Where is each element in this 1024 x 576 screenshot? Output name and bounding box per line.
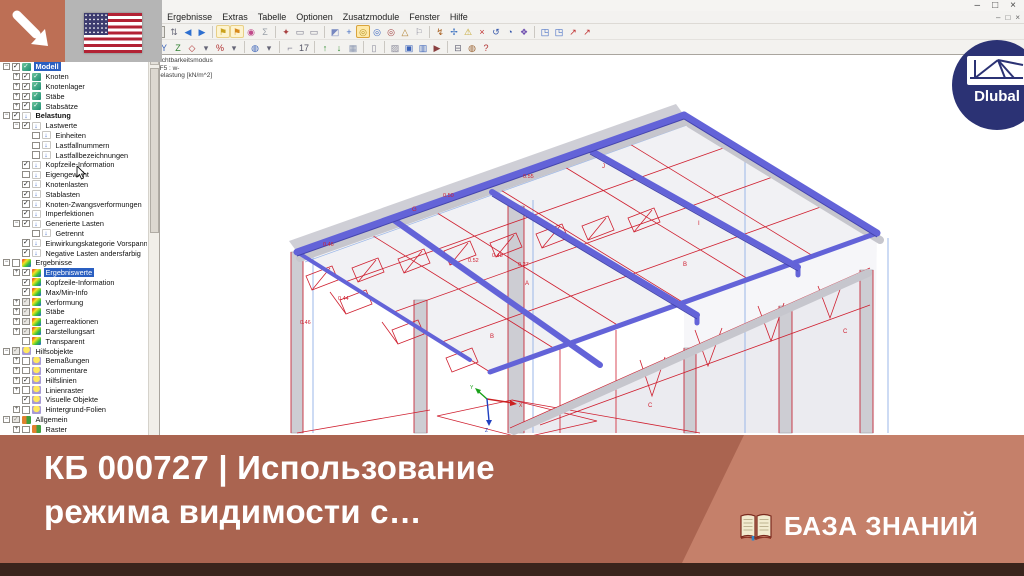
tree-item-label: Raster xyxy=(44,425,70,434)
collapse-icon[interactable]: − xyxy=(13,220,20,227)
expand-icon[interactable]: + xyxy=(13,103,20,110)
model-icon: ✓ xyxy=(32,92,41,100)
expand-icon[interactable]: + xyxy=(13,387,20,394)
tree-checkbox[interactable]: ✓ xyxy=(22,269,30,277)
helper-icon xyxy=(22,347,31,355)
load-icon: ↓ xyxy=(32,220,41,228)
tree-item-label: Knoten xyxy=(44,72,71,81)
tree-checkbox[interactable] xyxy=(32,230,40,238)
tree-checkbox[interactable]: ✓ xyxy=(12,416,20,424)
tree-item-label: Linienraster xyxy=(44,386,86,395)
workplane-icon[interactable]: ◎ xyxy=(356,25,370,38)
visibility-dd-icon[interactable]: ▾ xyxy=(262,41,276,54)
tree-item-ergebnisse[interactable]: −Ergebnisse xyxy=(1,258,147,268)
tree-checkbox[interactable]: ✓ xyxy=(22,279,30,287)
tree-checkbox[interactable]: ✓ xyxy=(22,288,30,296)
tree-item-ergebniswerte[interactable]: +✓Ergebniswerte xyxy=(1,268,147,278)
model-icon: ✓ xyxy=(32,73,41,81)
plane-xy-icon[interactable]: ◎ xyxy=(370,25,384,38)
tree-checkbox[interactable]: ✓ xyxy=(22,161,30,169)
svg-text:A: A xyxy=(525,281,529,287)
tree-checkbox[interactable]: ✓ xyxy=(12,112,20,120)
load-icon: ↓ xyxy=(32,161,41,169)
tree-item-label: Stablasten xyxy=(44,190,82,199)
tree-item-stäbe[interactable]: +✓Stäbe xyxy=(1,307,147,317)
tree-checkbox[interactable] xyxy=(22,426,30,434)
result-icon xyxy=(32,318,41,326)
svg-text:0.44: 0.44 xyxy=(338,296,349,302)
general-icon xyxy=(32,425,41,433)
tree-checkbox[interactable]: ✓ xyxy=(22,377,30,385)
selection-icon[interactable]: ◩ xyxy=(328,25,342,38)
svg-text:0.46: 0.46 xyxy=(300,320,311,326)
svg-text:G: G xyxy=(412,207,417,213)
tree-checkbox[interactable] xyxy=(12,259,20,267)
tree-item-hintergrund-folien[interactable]: +Hintergrund-Folien xyxy=(1,405,147,415)
expander-spacer xyxy=(23,142,30,149)
expand-icon[interactable]: + xyxy=(13,377,20,384)
expander-spacer xyxy=(13,279,20,286)
tree-item-label: Einheiten xyxy=(54,131,88,140)
tree-checkbox[interactable] xyxy=(22,171,30,179)
banner-footer-strip xyxy=(0,563,1024,576)
tree-item-label: Stäbe xyxy=(44,307,67,316)
collapse-icon[interactable]: − xyxy=(3,112,10,119)
result-icon xyxy=(32,288,41,296)
tree-item-bemaßungen[interactable]: +Bemaßungen xyxy=(1,356,147,366)
tree-item-stablasten[interactable]: ✓↓Stablasten xyxy=(1,189,147,199)
menu-optionen[interactable]: Optionen xyxy=(291,11,338,23)
tree-checkbox[interactable]: ✓ xyxy=(22,239,30,247)
dlubal-logo: Dlubal xyxy=(951,39,1024,131)
sum-icon[interactable]: Σ xyxy=(258,25,272,38)
us-flag-icon xyxy=(84,13,142,53)
result-icon xyxy=(32,298,41,306)
tree-item-knotenlasten[interactable]: ✓↓Knotenlasten xyxy=(1,180,147,190)
helper-icon xyxy=(32,367,41,375)
expand-icon[interactable]: + xyxy=(13,406,20,413)
tree-item-label: Stäbe xyxy=(44,92,67,101)
tree-item-label: Darstellungsart xyxy=(44,327,97,336)
scrollbar-thumb[interactable] xyxy=(150,68,159,233)
model-icon: ✓ xyxy=(32,82,41,90)
svg-text:J: J xyxy=(602,164,605,170)
load-icon: ↓ xyxy=(42,229,51,237)
expand-icon[interactable]: + xyxy=(13,308,20,315)
tree-checkbox[interactable] xyxy=(22,386,30,394)
expand-icon[interactable]: + xyxy=(13,328,20,335)
expand-icon[interactable]: + xyxy=(13,83,20,90)
mouse-cursor xyxy=(76,166,86,180)
tree-item-raster[interactable]: +Raster xyxy=(1,424,147,434)
expand-icon[interactable]: + xyxy=(13,299,20,306)
toolbar-separator xyxy=(324,26,325,38)
knowledge-base-label: БАЗА ЗНАНИЙ xyxy=(784,511,978,542)
toolbar-separator xyxy=(429,26,430,38)
tree-item-label: Einwirkungskategorie Vorspannung xyxy=(44,239,148,248)
toolbar-separator xyxy=(279,41,280,53)
tree-item-linienraster[interactable]: +Linienraster xyxy=(1,385,147,395)
show-loads-icon[interactable]: ⚑ xyxy=(216,25,230,38)
save-view-icon[interactable]: ▥ xyxy=(416,41,430,54)
collapse-icon[interactable]: − xyxy=(3,348,10,355)
tree-item-lastfallbezeichnungen[interactable]: ↓Lastfallbezeichnungen xyxy=(1,150,147,160)
move-icon[interactable]: ✢ xyxy=(447,25,461,38)
axes-icon[interactable]: + xyxy=(342,25,356,38)
tree-item-label: Hintergrund-Folien xyxy=(44,405,108,414)
tree-item-label: Negative Lasten andersfarbig xyxy=(44,249,143,258)
table-grid-icon[interactable]: ▦ xyxy=(346,41,360,54)
expander-spacer xyxy=(23,230,30,237)
svg-text:C: C xyxy=(648,403,653,409)
expander-spacer xyxy=(23,132,30,139)
tree-item-lastwerte[interactable]: −✓↓Lastwerte xyxy=(1,121,147,131)
view-z-icon[interactable]: Z xyxy=(171,41,185,54)
tree-checkbox[interactable]: ✓ xyxy=(22,93,30,101)
menu-zusatzmodule[interactable]: Zusatzmodule xyxy=(338,11,405,23)
collapse-icon[interactable]: − xyxy=(13,122,20,129)
svg-text:B: B xyxy=(490,334,494,340)
insert-down-icon[interactable]: ↓ xyxy=(332,41,346,54)
globe-icon[interactable]: ◍ xyxy=(465,41,479,54)
tree-item-label: Visuelle Objekte xyxy=(44,395,101,404)
corner-arrow-overlay xyxy=(0,0,65,62)
arrow-down-right-icon xyxy=(0,0,65,62)
tree-item-label: Lastwerte xyxy=(44,121,80,130)
tree-item-kopfzeile-information[interactable]: ✓↓Kopfzeile-Information xyxy=(1,160,147,170)
tree-checkbox[interactable]: ✓ xyxy=(12,63,20,71)
tree-item-label: Kopfzeile-Information xyxy=(44,278,117,287)
tree-item-negative-lasten-andersfarbig[interactable]: ✓↓Negative Lasten andersfarbig xyxy=(1,248,147,258)
expand-icon[interactable]: + xyxy=(13,426,20,433)
tree-item-knoten-zwangsverformungen[interactable]: ✓↓Knoten-Zwangsverformungen xyxy=(1,199,147,209)
tree-item-lagerreaktionen[interactable]: +✓Lagerreaktionen xyxy=(1,317,147,327)
tree-checkbox[interactable]: ✓ xyxy=(22,73,30,81)
tree-item-label: Hilfsobjekte xyxy=(34,347,76,356)
helper-icon xyxy=(32,357,41,365)
expand-icon[interactable]: + xyxy=(13,269,20,276)
expander-spacer xyxy=(13,181,20,188)
next-loadcase-icon[interactable]: ▶ xyxy=(195,25,209,38)
expander-spacer xyxy=(13,210,20,217)
show-results-icon[interactable]: ⚑ xyxy=(230,25,244,38)
svg-text:C: C xyxy=(843,329,848,335)
view-panel-icon[interactable]: ▭ xyxy=(293,25,307,38)
snapshot-icon[interactable]: ▣ xyxy=(402,41,416,54)
delete-icon[interactable]: × xyxy=(475,25,489,38)
toolbar-separator xyxy=(244,41,245,53)
tree-item-label: Max/Min-Info xyxy=(44,288,90,297)
toolbar-separator xyxy=(363,41,364,53)
result-icon xyxy=(32,337,41,345)
tree-checkbox[interactable]: ✓ xyxy=(22,249,30,257)
knowledge-base-badge: БАЗА ЗНАНИЙ xyxy=(739,511,978,542)
tree-item-label: Getrennt xyxy=(54,229,86,238)
tree-checkbox[interactable] xyxy=(22,367,30,375)
load-icon: ↓ xyxy=(32,180,41,188)
tree-checkbox[interactable]: ✓ xyxy=(22,102,30,110)
perspective-dd-icon[interactable]: ▾ xyxy=(227,41,241,54)
tree-item-hilfslinien[interactable]: +✓Hilfslinien xyxy=(1,376,147,386)
tree-item-modell[interactable]: −✓✓Modell xyxy=(1,62,147,72)
child-close-button[interactable]: × xyxy=(1015,13,1020,22)
tree-item-kopfzeile-information[interactable]: ✓Kopfzeile-Information xyxy=(1,278,147,288)
tree-item-label: Knotenlasten xyxy=(44,180,91,189)
pin-view-blue2-icon[interactable]: ◳ xyxy=(552,25,566,38)
load-icon: ↓ xyxy=(32,249,41,257)
menu-ergebnisse[interactable]: Ergebnisse xyxy=(162,11,217,23)
svg-text:0.55: 0.55 xyxy=(523,174,534,180)
history-icon[interactable]: ◔ xyxy=(503,25,517,38)
tree-checkbox[interactable] xyxy=(22,357,30,365)
tree-checkbox[interactable] xyxy=(22,337,30,345)
tree-item-label: Modell xyxy=(34,62,61,71)
collapse-icon[interactable]: − xyxy=(3,416,10,423)
tree-checkbox[interactable] xyxy=(22,406,30,414)
video-banner: КБ 000727 | Использование режима видимос… xyxy=(0,435,1024,563)
tree-checkbox[interactable]: ✓ xyxy=(22,220,30,228)
expander-spacer xyxy=(13,171,20,178)
child-minimize-button[interactable]: – xyxy=(996,13,1000,22)
open-book-icon xyxy=(739,512,773,542)
numbering-icon[interactable]: 17 xyxy=(297,41,311,54)
expander-spacer xyxy=(13,240,20,247)
tree-item-label: Lastfallbezeichnungen xyxy=(54,151,131,160)
svg-text:Dlubal: Dlubal xyxy=(974,88,1020,105)
load-icon: ↓ xyxy=(32,210,41,218)
angle-icon[interactable]: ⌐ xyxy=(283,41,297,54)
maximize-button[interactable]: □ xyxy=(992,1,998,11)
menu-tabelle[interactable]: Tabelle xyxy=(253,11,292,23)
pin-view-blue-icon[interactable]: ◳ xyxy=(538,25,552,38)
tree-item-einwirkungskategorie-vorspannung[interactable]: ✓↓Einwirkungskategorie Vorspannung xyxy=(1,238,147,248)
tree-item-verformung[interactable]: +✓Verformung xyxy=(1,297,147,307)
general-icon xyxy=(22,416,31,424)
tree-item-label: Knotenlager xyxy=(44,82,87,91)
movie-icon[interactable]: ▶ xyxy=(430,41,444,54)
tree-checkbox[interactable]: ✓ xyxy=(22,396,30,404)
view-info-text: Sichtbarkeitsmodus LF5 : w- Belastung [k… xyxy=(156,57,213,80)
pin-red2-icon[interactable]: ↗ xyxy=(580,25,594,38)
expander-spacer xyxy=(23,152,30,159)
print-icon[interactable]: ⊟ xyxy=(451,41,465,54)
toolbar-separator xyxy=(447,41,448,53)
child-window-controls: – □ × xyxy=(996,13,1020,22)
pin-red-icon[interactable]: ↗ xyxy=(566,25,580,38)
expand-icon[interactable]: + xyxy=(13,73,20,80)
helper-icon xyxy=(32,406,41,414)
toolbar-separator xyxy=(384,41,385,53)
svg-text:0.50: 0.50 xyxy=(443,193,454,199)
result-icon xyxy=(32,269,41,277)
tree-checkbox[interactable]: ✓ xyxy=(22,318,30,326)
tree-checkbox[interactable]: ✓ xyxy=(22,191,30,199)
tree-checkbox[interactable] xyxy=(32,142,40,150)
svg-text:B: B xyxy=(683,262,687,268)
tree-item-label: Generierte Lasten xyxy=(44,219,106,228)
view-iso-icon[interactable]: ◇ xyxy=(185,41,199,54)
prev-loadcase-icon[interactable]: ◀ xyxy=(181,25,195,38)
collapse-icon[interactable]: − xyxy=(3,259,10,266)
perspective-icon[interactable]: % xyxy=(213,41,227,54)
expand-icon[interactable]: + xyxy=(13,318,20,325)
tree-item-visuelle-objekte[interactable]: ✓Visuelle Objekte xyxy=(1,395,147,405)
tree-item-knotenlager[interactable]: +✓✓Knotenlager xyxy=(1,82,147,92)
tree-checkbox[interactable]: ✓ xyxy=(22,328,30,336)
tree-checkbox[interactable] xyxy=(32,132,40,140)
svg-text:Z: Z xyxy=(485,428,488,434)
result-icon xyxy=(32,308,41,316)
expand-icon[interactable]: + xyxy=(13,93,20,100)
result-values-icon[interactable]: ◉ xyxy=(244,25,258,38)
tree-checkbox[interactable]: ✓ xyxy=(22,181,30,189)
tree-item-label: Lagerreaktionen xyxy=(44,317,101,326)
tree-item-stabsätze[interactable]: +✓✓Stabsätze xyxy=(1,101,147,111)
tree-item-generierte-lasten[interactable]: −✓↓Generierte Lasten xyxy=(1,219,147,229)
load-icon: ↓ xyxy=(32,200,41,208)
toolbar-separator xyxy=(314,41,315,53)
expand-icon[interactable]: + xyxy=(13,357,20,364)
result-icon xyxy=(32,327,41,335)
helper-icon xyxy=(32,386,41,394)
tree-item-max-min-info[interactable]: ✓Max/Min-Info xyxy=(1,287,147,297)
menu-fenster[interactable]: Fenster xyxy=(404,11,445,23)
us-flag-canton xyxy=(84,13,108,35)
check-icon[interactable]: ⚠ xyxy=(461,25,475,38)
tree-item-label: Kommentare xyxy=(44,366,90,375)
expander-spacer xyxy=(13,161,20,168)
toolbar-separator xyxy=(534,26,535,38)
tree-item-eigengewicht[interactable]: ↓Eigengewicht xyxy=(1,170,147,180)
load-icon: ↓ xyxy=(32,190,41,198)
expander-spacer xyxy=(13,289,20,296)
child-restore-button[interactable]: □ xyxy=(1005,13,1010,22)
svg-text:0.48: 0.48 xyxy=(492,253,503,259)
notebook-icon[interactable]: ▯ xyxy=(367,41,381,54)
tree-checkbox[interactable]: ✓ xyxy=(22,200,30,208)
tree-item-transparent[interactable]: Transparent xyxy=(1,336,147,346)
expander-spacer xyxy=(13,191,20,198)
banner-title: КБ 000727 | Использование режима видимос… xyxy=(44,446,495,534)
model-icon: ✓ xyxy=(22,63,31,71)
expander-spacer xyxy=(13,201,20,208)
tree-item-label: Lastfallnummern xyxy=(54,141,112,150)
connect-icon[interactable]: ❖ xyxy=(517,25,531,38)
tree-item-belastung[interactable]: −✓↓Belastung xyxy=(1,111,147,121)
tree-item-lastfallnummern[interactable]: ↓Lastfallnummern xyxy=(1,140,147,150)
load-icon: ↓ xyxy=(42,151,51,159)
tree-checkbox[interactable]: ✓ xyxy=(22,308,30,316)
load-icon: ↓ xyxy=(22,112,31,120)
tree-item-label: Verformung xyxy=(44,298,86,307)
tree-item-label: Allgemein xyxy=(34,415,70,424)
expander-spacer xyxy=(13,396,20,403)
toolbar-separator xyxy=(212,26,213,38)
guide-icon[interactable]: ⚐ xyxy=(412,25,426,38)
helper-icon xyxy=(32,396,41,404)
tree-item-label: Transparent xyxy=(44,337,87,346)
tree-item-label: Ergebnisse xyxy=(34,258,75,267)
tree-item-label: Stabsätze xyxy=(44,102,80,111)
tree-item-darstellungsart[interactable]: +✓Darstellungsart xyxy=(1,327,147,337)
load-icon: ↓ xyxy=(42,131,51,139)
tree-item-imperfektionen[interactable]: ✓↓Imperfektionen xyxy=(1,209,147,219)
svg-text:0.52: 0.52 xyxy=(468,258,479,264)
tree-checkbox[interactable]: ✓ xyxy=(22,83,30,91)
background-icon[interactable]: ▨ xyxy=(388,41,402,54)
close-button[interactable]: × xyxy=(1010,1,1016,11)
load-icon: ↓ xyxy=(32,239,41,247)
help-icon[interactable]: ? xyxy=(479,41,493,54)
svg-text:0.46: 0.46 xyxy=(323,242,334,248)
tree-item-knoten[interactable]: +✓✓Knoten xyxy=(1,72,147,82)
tree-checkbox[interactable]: ✓ xyxy=(22,298,30,306)
view-panel2-icon[interactable]: ▭ xyxy=(307,25,321,38)
banner-right-panel xyxy=(682,435,1024,563)
load-icon: ↓ xyxy=(32,122,41,130)
tree-item-hilfsobjekte[interactable]: −✓Hilfsobjekte xyxy=(1,346,147,356)
display-properties-icon[interactable]: ✦ xyxy=(279,25,293,38)
result-icon xyxy=(32,278,41,286)
measure-icon[interactable]: ↯ xyxy=(433,25,447,38)
tree-item-label: Belastung xyxy=(34,111,73,120)
model-icon: ✓ xyxy=(32,102,41,110)
tree-checkbox[interactable]: ✓ xyxy=(22,210,30,218)
loadcase-stepper-icon[interactable]: ⇅ xyxy=(167,25,181,38)
load-icon: ↓ xyxy=(42,141,51,149)
tree-item-label: Ergebniswerte xyxy=(44,268,95,277)
tree-checkbox[interactable] xyxy=(32,151,40,159)
tree-item-label: Imperfektionen xyxy=(44,209,96,218)
tree-item-label: Hilfslinien xyxy=(44,376,79,385)
svg-text:Y: Y xyxy=(470,385,474,391)
expand-icon[interactable]: + xyxy=(13,367,20,374)
visibility-mode-icon[interactable]: ◍ xyxy=(248,41,262,54)
result-icon xyxy=(22,259,31,267)
tree-item-stäbe[interactable]: +✓✓Stäbe xyxy=(1,91,147,101)
tree-item-getrennt[interactable]: ↓Getrennt xyxy=(1,229,147,239)
snap-icon[interactable]: △ xyxy=(398,25,412,38)
expander-spacer xyxy=(13,250,20,257)
collapse-icon[interactable]: − xyxy=(3,63,10,70)
toolbar-separator xyxy=(275,26,276,38)
expander-spacer xyxy=(13,338,20,345)
tree-item-label: Bemaßungen xyxy=(44,356,92,365)
language-flag-overlay xyxy=(65,0,162,62)
helper-icon xyxy=(32,376,41,384)
view-dd-icon[interactable]: ▾ xyxy=(199,41,213,54)
minimize-button[interactable]: – xyxy=(975,1,981,11)
tree-item-einheiten[interactable]: ↓Einheiten xyxy=(1,131,147,141)
tree-checkbox[interactable]: ✓ xyxy=(12,347,20,355)
tree-checkbox[interactable]: ✓ xyxy=(22,122,30,130)
undo-icon[interactable]: ↺ xyxy=(489,25,503,38)
tree-item-kommentare[interactable]: +Kommentare xyxy=(1,366,147,376)
plane-yz-icon[interactable]: ◎ xyxy=(384,25,398,38)
load-icon: ↓ xyxy=(32,171,41,179)
menu-extras[interactable]: Extras xyxy=(217,11,253,23)
tree-item-allgemein[interactable]: −✓Allgemein xyxy=(1,415,147,425)
svg-text:0.27: 0.27 xyxy=(518,262,529,268)
insert-up-icon[interactable]: ↑ xyxy=(318,41,332,54)
tree-item-label: Knoten-Zwangsverformungen xyxy=(44,200,144,209)
menu-hilfe[interactable]: Hilfe xyxy=(445,11,473,23)
